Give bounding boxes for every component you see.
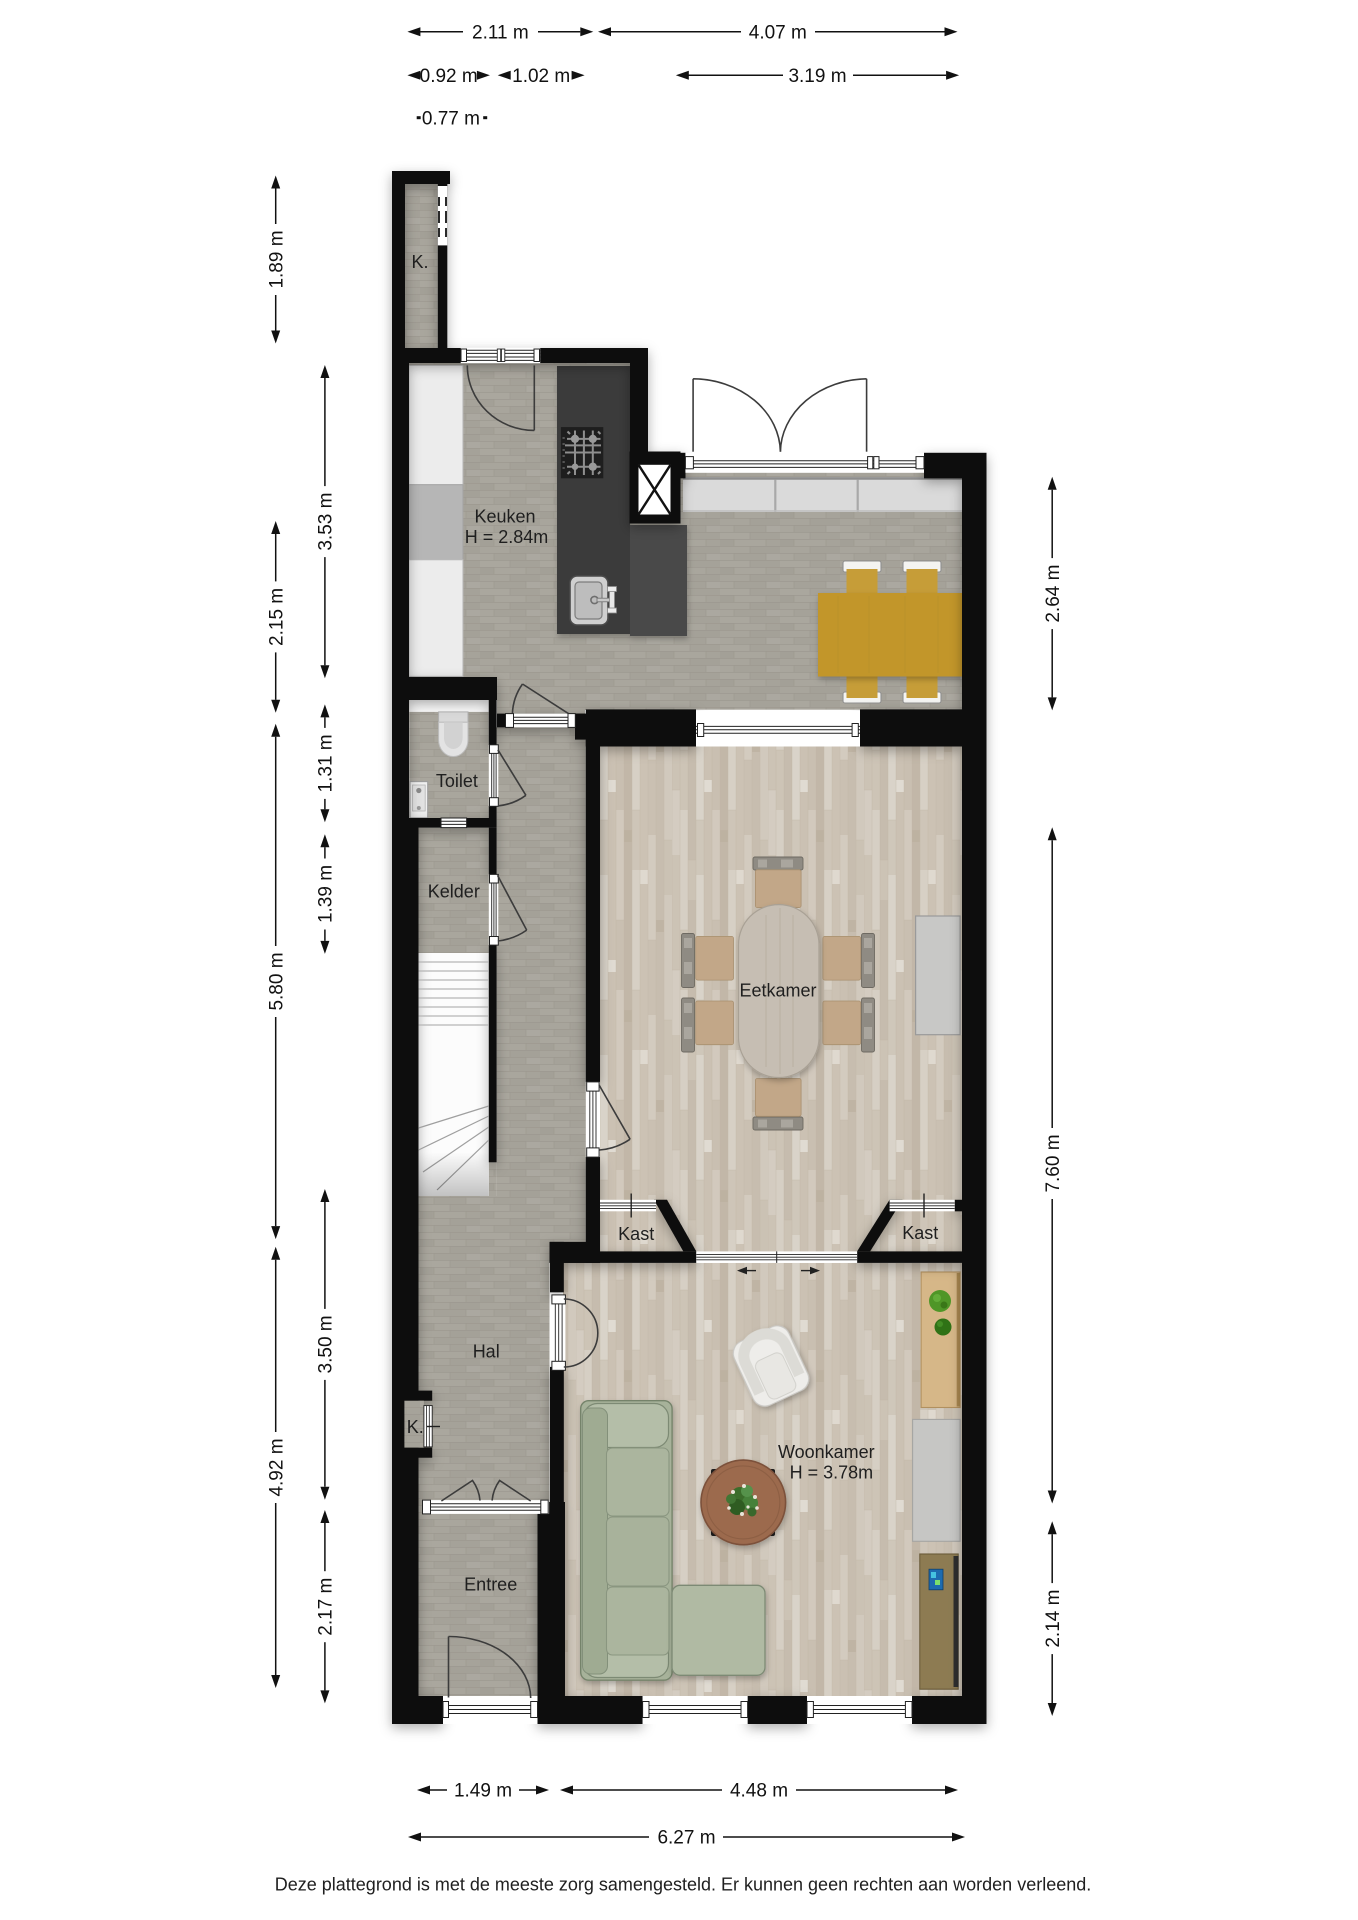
svg-text:2.15 m: 2.15 m [266, 588, 287, 646]
svg-text:6.27 m: 6.27 m [657, 1828, 715, 1849]
svg-text:0.92 m: 0.92 m [420, 66, 478, 87]
svg-text:7.60 m: 7.60 m [1043, 1134, 1064, 1192]
svg-text:Kast: Kast [902, 1223, 938, 1243]
svg-text:5.80 m: 5.80 m [266, 952, 287, 1010]
svg-text:0.77 m: 0.77 m [422, 108, 480, 129]
svg-text:2.14 m: 2.14 m [1043, 1590, 1064, 1648]
svg-text:K.: K. [411, 252, 428, 272]
svg-text:2.17 m: 2.17 m [316, 1578, 337, 1636]
svg-text:3.53 m: 3.53 m [316, 493, 337, 551]
svg-text:1.49 m: 1.49 m [454, 1781, 512, 1802]
svg-text:Deze plattegrond is met de mee: Deze plattegrond is met de meeste zorg s… [275, 1875, 1092, 1895]
svg-text:1.31 m: 1.31 m [316, 734, 337, 792]
svg-text:K.: K. [407, 1417, 424, 1437]
svg-text:Hal: Hal [473, 1342, 500, 1362]
svg-text:3.19 m: 3.19 m [788, 66, 846, 87]
svg-text:Kast: Kast [618, 1224, 654, 1244]
svg-text:Entree: Entree [464, 1574, 517, 1594]
svg-text:H = 2.84m: H = 2.84m [465, 527, 549, 547]
svg-text:1.89 m: 1.89 m [266, 230, 287, 288]
svg-text:2.64 m: 2.64 m [1043, 565, 1064, 623]
svg-text:4.07 m: 4.07 m [749, 22, 807, 43]
svg-text:4.48 m: 4.48 m [730, 1781, 788, 1802]
svg-text:Woonkamer: Woonkamer [778, 1442, 875, 1462]
svg-text:Eetkamer: Eetkamer [739, 981, 816, 1001]
svg-text:Toilet: Toilet [436, 771, 478, 791]
svg-text:H = 3.78m: H = 3.78m [790, 1462, 874, 1482]
svg-text:Kelder: Kelder [428, 881, 480, 901]
svg-text:4.92 m: 4.92 m [266, 1438, 287, 1496]
svg-text:1.02 m: 1.02 m [512, 66, 570, 87]
svg-text:Keuken: Keuken [474, 507, 535, 527]
svg-text:1.39 m: 1.39 m [316, 865, 337, 923]
svg-text:2.11 m: 2.11 m [472, 22, 529, 43]
svg-text:3.50 m: 3.50 m [316, 1315, 337, 1373]
